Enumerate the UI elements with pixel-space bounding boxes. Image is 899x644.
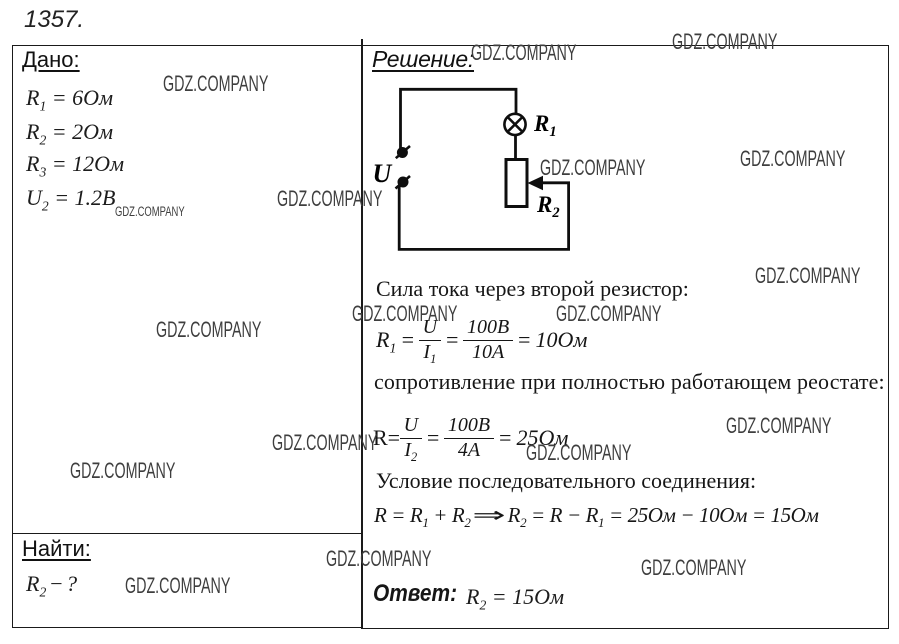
svg-text:U: U: [373, 159, 393, 188]
svg-text:R1: R1: [533, 111, 557, 140]
svg-text:R2: R2: [536, 192, 560, 221]
